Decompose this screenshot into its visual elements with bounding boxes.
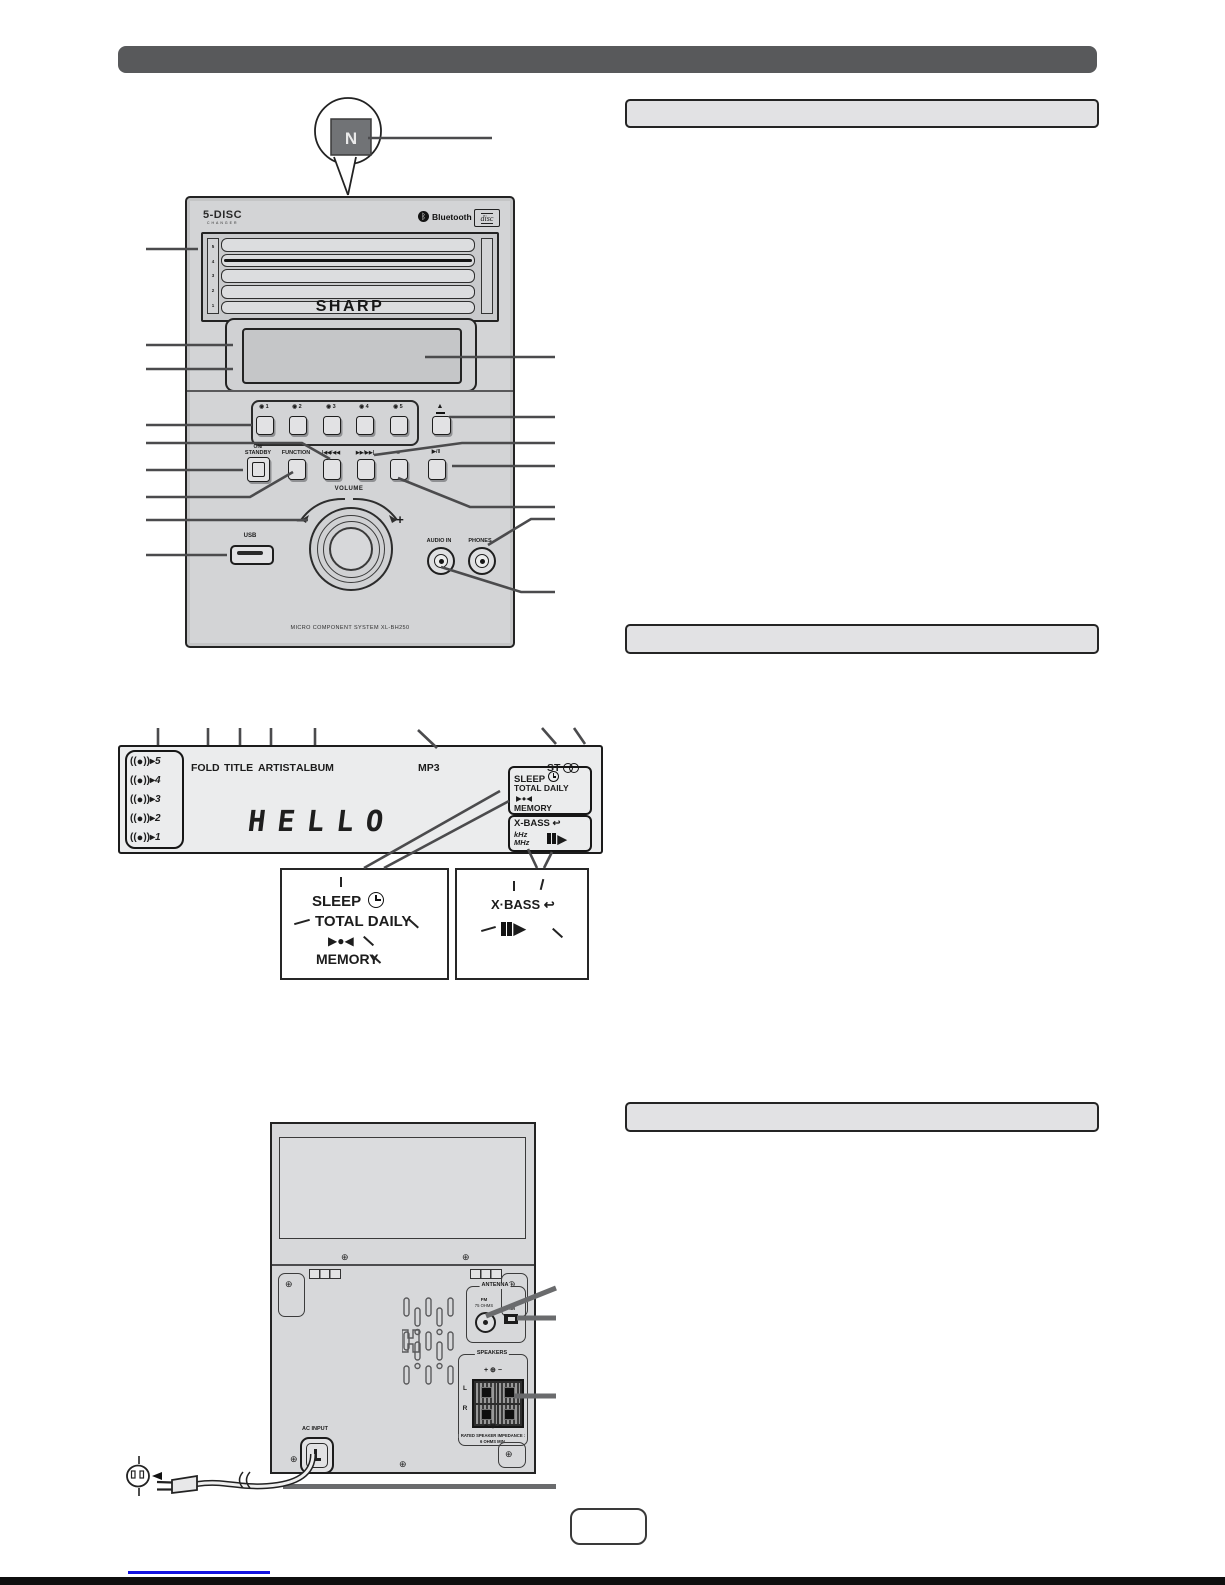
rear-panel-diagram: ⊕ ⊕ ⊕ ⊕ ANTENNA FM 75 OHMS [270,1122,536,1474]
total-daily-indicator: TOTAL DAILY [514,784,569,793]
screw-icon: ⊕ [341,1253,349,1262]
display-diagram: ((●))▸5 ((●))▸4 ((●))▸3 ((●))▸2 ((●))▸1 … [118,745,603,854]
disc-2-label: ◉ 2 [292,405,301,411]
audio-in-jack [427,547,455,575]
screw-icon: ⊕ [399,1460,407,1469]
slot-number: 4 [208,259,218,264]
skip-back-label: |◀◀/◀◀ [322,451,340,456]
disc-1-button [256,416,274,435]
loop-arrow-icon: ↩ [553,818,561,829]
disc-indicator: ((●))▸5 [127,752,182,771]
disc-4-button [356,416,374,435]
screw-icon: ⊕ [505,1450,513,1459]
timer-indicator-box: SLEEP TOTAL DAILY ▶●◀ MEMORY [508,766,592,815]
disc-5-label: ◉ 5 [393,405,402,411]
disc-indicator: ((●))▸1 [127,828,182,847]
power-cord [197,1454,313,1486]
disc-icon: (( [130,775,137,786]
function-button [288,459,306,480]
inserted-disc-edge [224,259,472,263]
timer-clock-icon [548,771,559,782]
xbass-indicator: X-BASS ↩ [514,819,561,829]
section-header-1 [625,99,1099,128]
loop-arrow-icon: ↩ [544,897,555,912]
display-bezel [225,318,477,392]
timer-clock-icon [368,892,384,908]
compact-disc-logo: disc [474,209,500,227]
stop-label: ■ [396,450,400,456]
artist-indicator: ARTIST [258,763,296,774]
disc-2-button [289,416,307,435]
eject-icon: ▲ [437,403,444,410]
play-pause-label: ▶/‖ [432,450,441,456]
disc-icon: ◉ [326,404,331,410]
vent-slot [470,1269,502,1279]
slot-number: 5 [208,244,218,249]
disc-4-label: ◉ 4 [359,405,368,411]
screw-icon: ⊕ [462,1253,470,1262]
ventilation-holes [402,1296,458,1388]
plug-prong [157,1482,172,1483]
disc-icon: (( [130,794,137,805]
disc-1-label: ◉ 1 [259,405,268,411]
usb-label: USB [244,533,257,539]
disc-indicator: ((●))▸4 [127,771,182,790]
play-pause-button [428,459,446,480]
phones-jack [468,547,496,575]
usb-port [230,545,274,565]
slot-number: 1 [208,303,218,308]
disc-changer-logo-sub: CHANGER [207,222,239,226]
speaker-terminals [472,1379,524,1428]
sleep-indicator-zoom: SLEEP [312,892,384,909]
volume-label: VOLUME [335,486,364,492]
standby-label: STANDBY [245,451,271,457]
disc-icon: ◉ [259,404,264,410]
xbass-indicator-box: X-BASS ↩ kHz MHz ▶ [508,815,592,852]
title-indicator: TITLE [224,763,253,774]
rear-step-line [272,1264,534,1266]
page-bottom-edge [0,1577,1225,1585]
mp3-indicator: MP3 [418,763,440,774]
rated-impedance-line1: RATED SPEAKER IMPEDANCE : [459,1434,527,1438]
disc-3-button [323,416,341,435]
nfc-balloon: N [310,95,390,200]
disc-icon: (( [130,813,137,824]
magnified-xbass-box: X·BASS ↩ ▶ [455,868,589,980]
panel-seam [187,390,513,392]
compact-disc-logo-text: disc [481,213,494,224]
speaker-left-label: L [463,1386,467,1393]
speaker-polarity-bottom: + ⊕ − [484,1423,502,1430]
vent-slot [309,1269,341,1279]
am-antenna-terminal [504,1314,518,1324]
power-cord-assembly [112,1434,352,1512]
disc-slot [221,269,475,283]
record-indicator-icon-zoom: ▶●◀ [328,935,354,947]
album-indicator: ALBUM [296,763,334,774]
disc-5-button [390,416,408,435]
tray-right-strip [481,238,493,314]
volume-knob [309,507,393,591]
slot-number: 3 [208,273,218,278]
disc-icon: (( [130,832,137,843]
speaker-terminal [476,1405,497,1425]
wall-outlet-icon [127,1466,149,1487]
manual-page: N 5-DISC CHANGER ᛒ Bluetooth disc 5 4 3 … [0,0,1225,1585]
disc-icon: ◉ [393,404,398,410]
audio-in-label: AUDIO IN [427,539,452,545]
bluetooth-icon: ᛒ [418,211,429,222]
stop-button [390,459,408,480]
antenna-title: ANTENNA [480,1283,511,1289]
section-header-3 [625,1102,1099,1132]
speaker-terminal [499,1383,520,1403]
bluetooth-logo: Bluetooth [432,213,472,222]
ac-plug [172,1476,197,1493]
eject-button [432,416,451,435]
nfc-n-mark-icon: N [345,129,357,148]
pause-play-indicator-icon: ▶ [547,831,567,847]
ac-input-label: AC INPUT [302,1427,328,1433]
disc-icon: (( [130,756,137,767]
footer-link-line [128,1571,270,1574]
disc-indicator: ((●))▸3 [127,790,182,809]
speaker-terminal [499,1405,520,1425]
screw-icon: ⊕ [285,1280,293,1289]
display-window [242,328,462,384]
insert-arrow-icon [152,1472,162,1480]
brand-logo: SHARP [316,299,385,315]
memory-indicator: MEMORY [514,804,552,813]
disc-slot [221,238,475,252]
memory-indicator-zoom: MEMORY [316,952,378,966]
total-daily-indicator-zoom: TOTAL DAILY [315,914,411,929]
disc-indicator: ((●))▸2 [127,809,182,828]
eject-icon-bar [436,412,445,414]
pause-play-indicator-icon-zoom: ▶ [501,920,526,937]
slot-number: 2 [208,288,218,293]
display-disc-indicator-frame: ((●))▸5 ((●))▸4 ((●))▸3 ((●))▸2 ((●))▸1 [125,750,184,849]
page-number-box [570,1508,647,1545]
xbass-indicator-zoom: X·BASS ↩ [491,898,555,911]
disc-slot [221,285,475,299]
phones-label: PHONES [468,539,491,545]
display-main-text: HELLO [246,807,397,836]
disc-icon: ◉ [292,404,297,410]
fm-label: FM [481,1298,488,1303]
fm-ohms-label: 75 OHMS [475,1304,493,1308]
speaker-terminal [476,1383,497,1403]
magnified-timer-box: SLEEP TOTAL DAILY ▶●◀ MEMORY [280,868,449,980]
skip-back-button [323,459,341,480]
speaker-right-label: R [463,1406,468,1413]
disc-3-label: ◉ 3 [326,405,335,411]
volume-plus: + [396,513,404,526]
speakers-title: SPEAKERS [475,1351,509,1357]
top-title-bar [118,46,1097,73]
model-text: MICRO COMPONENT SYSTEM XL-BH250 [291,626,410,632]
fm-antenna-jack [475,1312,496,1333]
function-label: FUNCTION [282,451,310,457]
power-standby-button [247,457,270,482]
record-indicator-icon: ▶●◀ [516,795,532,803]
fold-indicator: FOLD [191,763,220,774]
am-label: AM [507,1307,515,1312]
skip-forward-button [357,459,375,480]
disc-changer-logo: 5-DISC [203,210,242,221]
front-panel-diagram: 5-DISC CHANGER ᛒ Bluetooth disc 5 4 3 2 … [185,196,515,648]
rear-cover-plate [279,1137,526,1239]
mhz-indicator: MHz [514,839,529,847]
volume-minus: − [296,514,304,527]
section-header-2 [625,624,1099,654]
tray-left-index: 5 4 3 2 1 [207,238,219,314]
speaker-polarity-top: + ⊕ − [484,1367,502,1374]
disc-icon: ◉ [359,404,364,410]
skip-forward-label: ▶▶/▶▶| [356,451,374,456]
disc-slot [221,254,475,268]
